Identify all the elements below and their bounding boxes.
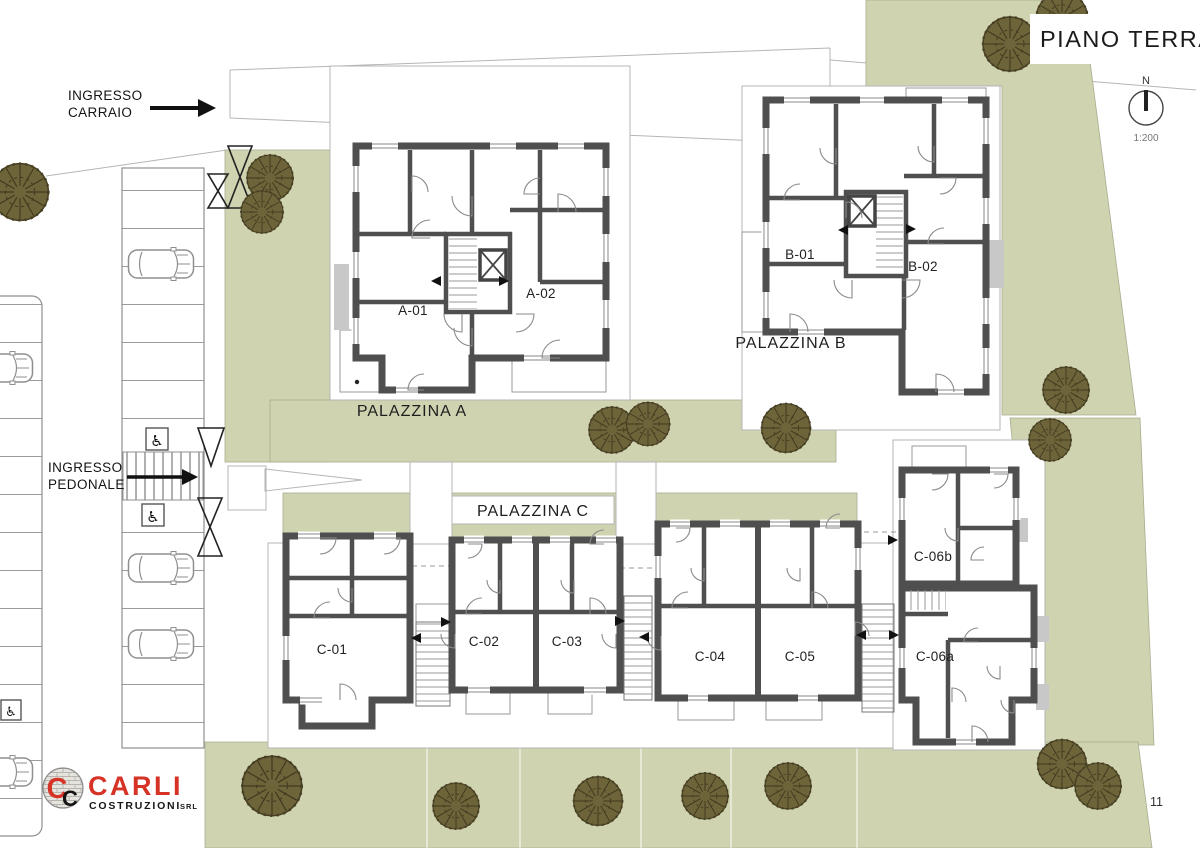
label-ingresso-pedonale: INGRESSO PEDONALE (48, 460, 125, 492)
parking-area: ♿ ♿ ♿ (0, 168, 204, 836)
car-icon (129, 552, 194, 585)
tree-icon (1043, 367, 1089, 413)
accessible-parking-icon: ♿ (150, 432, 163, 450)
entrance-arrow-carraio (150, 99, 216, 117)
tree-icon (0, 164, 48, 221)
unit-label-b-02: B-02 (908, 259, 938, 274)
outdoor-stairs (416, 622, 450, 706)
building-palazzina-a (356, 146, 606, 390)
ingresso-pedonale-line2: PEDONALE (48, 477, 125, 492)
elevator (849, 196, 875, 226)
unit-label-c-01: C-01 (317, 642, 347, 657)
company-logo: C C CARLI COSTRUZIONI SRL (43, 768, 198, 812)
tree-icon (1029, 419, 1071, 461)
page-number: 11 (1150, 795, 1163, 809)
outdoor-stairs (862, 604, 894, 712)
ingresso-carraio-line1: INGRESSO (68, 88, 142, 103)
logo-suffix: SRL (180, 802, 198, 811)
tree-icon (1075, 763, 1121, 809)
stairs (906, 590, 946, 610)
tree-icon (682, 773, 728, 819)
accessible-parking-icon: ♿ (146, 508, 159, 526)
building-label-palazzina-c: PALAZZINA C (477, 503, 589, 520)
site-plan: ♿ ♿ ♿ (0, 0, 1200, 848)
tree-icon (983, 17, 1037, 71)
tree-icon (433, 783, 479, 829)
car-icon (129, 628, 194, 661)
tree-icon (241, 191, 283, 233)
accessible-parking-icon: ♿ (5, 705, 17, 720)
ingresso-carraio-line2: CARRAIO (68, 105, 132, 120)
ingresso-pedonale-line1: INGRESSO (48, 460, 122, 475)
car-icon (129, 248, 194, 281)
stairs (876, 196, 903, 272)
label-ingresso-carraio: INGRESSO CARRAIO (68, 88, 142, 120)
outdoor-stairs (624, 596, 652, 700)
north-label: N (1142, 75, 1150, 87)
tree-icon (765, 763, 811, 809)
car-icon (0, 352, 33, 385)
logo-monogram-black: C (62, 786, 78, 811)
drawing-title: PIANO TERRA (1040, 26, 1200, 52)
unit-label-c-05: C-05 (785, 649, 815, 664)
unit-label-c-02: C-02 (469, 634, 499, 649)
unit-label-a-01: A-01 (398, 303, 428, 318)
floor-plan-page: ♿ ♿ ♿ (0, 0, 1200, 848)
tree-icon (762, 404, 811, 453)
logo-brand: CARLI (88, 771, 183, 801)
unit-label-c-03: C-03 (552, 634, 582, 649)
unit-label-c-04: C-04 (695, 649, 726, 664)
logo-sub: COSTRUZIONI (89, 800, 181, 812)
unit-label-b-01: B-01 (785, 247, 815, 262)
unit-label-c-06b: C-06b (914, 549, 952, 564)
elevator (480, 250, 506, 280)
unit-label-a-02: A-02 (526, 286, 556, 301)
tree-icon (626, 402, 669, 445)
scale-label: 1:200 (1133, 133, 1158, 144)
unit-label-c-06a: C-06a (916, 649, 954, 664)
tree-icon (242, 756, 301, 815)
stairs (449, 237, 477, 309)
car-icon (0, 756, 33, 789)
building-label-palazzina-a: PALAZZINA A (357, 403, 467, 420)
tree-icon (574, 777, 623, 826)
building-label-palazzina-b: PALAZZINA B (735, 335, 846, 352)
